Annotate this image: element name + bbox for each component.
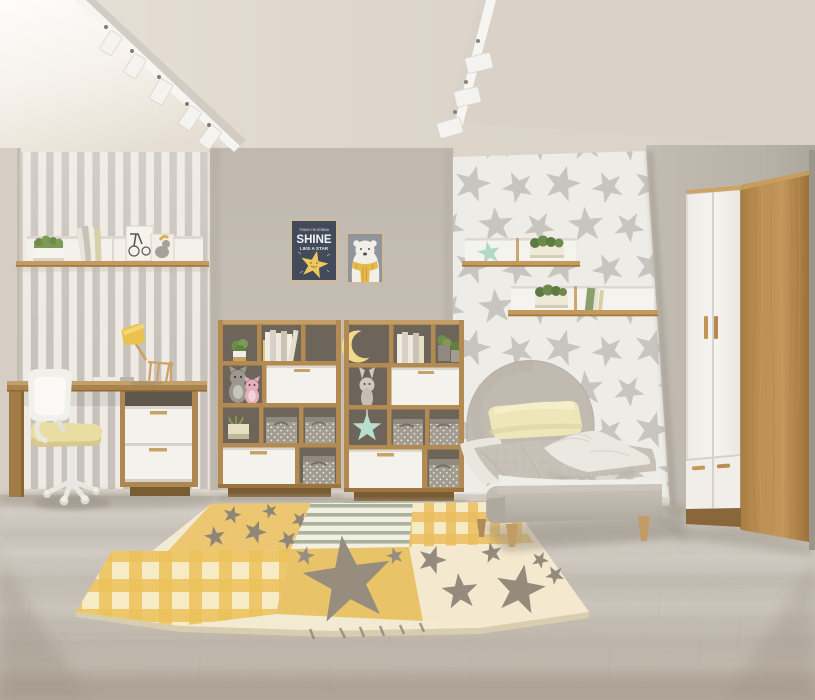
svg-text:LIKE A STAR: LIKE A STAR: [300, 246, 329, 251]
svg-text:SHINE: SHINE: [296, 234, 331, 246]
svg-text:TODAY I'M GONNA: TODAY I'M GONNA: [299, 228, 330, 232]
